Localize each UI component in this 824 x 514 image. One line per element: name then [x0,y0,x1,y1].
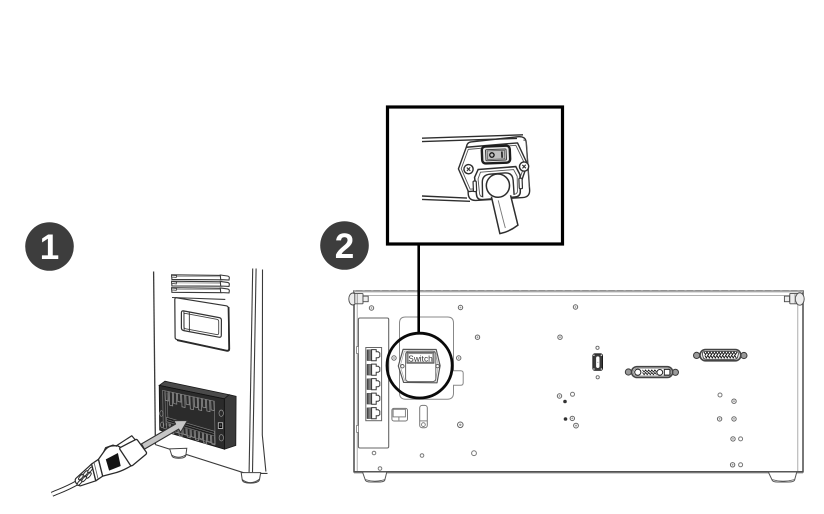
svg-text:1: 1 [40,228,59,267]
svg-text:2: 2 [335,227,354,266]
svg-text:Switch: Switch [408,353,433,363]
